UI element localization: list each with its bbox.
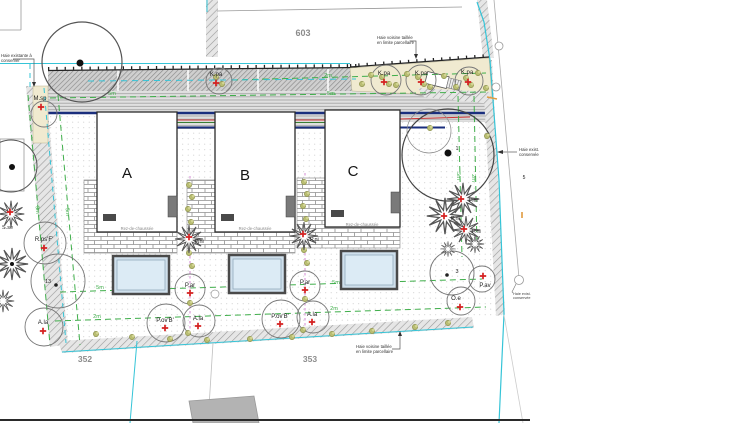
dim-2m-top: 2m bbox=[324, 73, 332, 79]
building-a-label: A bbox=[122, 165, 132, 182]
plant-label-oe: O.e bbox=[451, 296, 461, 302]
note-pole-line2: conservée bbox=[513, 296, 531, 300]
plant-label-rpsf: R.ps'F' bbox=[35, 237, 53, 243]
building-c-label: C bbox=[348, 163, 359, 180]
building-a-floor-label: Rez-de-chaussée bbox=[121, 226, 154, 231]
plant-label-kpa-2: K.pa bbox=[378, 71, 391, 77]
plant-label-msp: M.sp bbox=[33, 96, 47, 102]
plant-label-pni-3: P.ni bbox=[469, 198, 478, 204]
buildings: A B C Rez-de-chaussée Rez-de-chaussée Re… bbox=[97, 110, 400, 232]
utility-pole-1 bbox=[495, 42, 503, 50]
plant-label-ala-1: A.la bbox=[38, 320, 49, 326]
dim-2m-garden-left: 2m bbox=[93, 314, 101, 320]
note-top-line2: en limite parcellaire bbox=[377, 40, 415, 45]
plant-label-par-2: P.ar bbox=[300, 280, 310, 286]
marker-number-5: 5 bbox=[523, 175, 526, 181]
dim-2m-garden-mid: 2m bbox=[330, 306, 338, 312]
building-c bbox=[325, 110, 400, 227]
tree-number-3: 3 bbox=[455, 269, 458, 275]
parcel-label-353: 353 bbox=[303, 354, 317, 364]
utility-pole-3 bbox=[515, 276, 524, 285]
dim-2m-right: 2m bbox=[470, 174, 476, 182]
plant-label-povb-1: P.ov'B' bbox=[156, 318, 174, 324]
plant-label-par-1: P.ar bbox=[185, 283, 195, 289]
plant-label-ala-2: A.la bbox=[193, 316, 204, 322]
plant-label-sse: S.se bbox=[2, 225, 13, 231]
dim-3m-left: 3m bbox=[34, 206, 41, 215]
dim-5m-garden-left: 5m bbox=[96, 285, 104, 291]
parcel-label-603: 603 bbox=[295, 28, 310, 38]
plant-label-povb-2: P.ov'B' bbox=[271, 314, 289, 320]
site-plan-drawing: 2m 5m 5m 5m 5m 2m 2m 3m 5m 5m 2m bbox=[0, 0, 750, 423]
tree-number-1: 1 bbox=[456, 146, 459, 152]
plant-label-kpa-1: K.pa bbox=[210, 72, 223, 78]
plant-label-pni-1: P.ni bbox=[195, 239, 204, 245]
tree-number-13: 13 bbox=[45, 279, 51, 285]
dim-5m-garden-mid: 5m bbox=[332, 280, 340, 286]
building-b-label: B bbox=[240, 167, 250, 184]
plant-label-pni-4: P.ni bbox=[451, 216, 460, 222]
building-c-floor-label: Rez-de-chaussée bbox=[346, 222, 379, 227]
plant-label-ala-3: A.la bbox=[307, 312, 318, 318]
parcel-label-352: 352 bbox=[78, 354, 92, 364]
utility-pole-2 bbox=[492, 83, 500, 91]
plant-label-pni-2: P.ni bbox=[310, 237, 319, 243]
plant-label-pni-5: P.ni bbox=[472, 229, 481, 235]
building-b-floor-label: Rez-de-chaussée bbox=[239, 226, 272, 231]
note-bottom-line2: en limite parcellaire bbox=[356, 349, 394, 354]
pools bbox=[113, 251, 397, 294]
plant-label-kpa-3: K.pa bbox=[415, 71, 428, 77]
dim-5m-right: 5m bbox=[455, 172, 461, 180]
site-plan: 2m 5m 5m 5m 5m 2m 2m 3m 5m 5m 2m bbox=[0, 0, 750, 423]
neighbour-building bbox=[189, 396, 259, 423]
plant-label-pav: P.av bbox=[479, 283, 490, 289]
dim-5m-band-mid: 5m bbox=[327, 91, 335, 97]
note-right-line2: conservée bbox=[519, 152, 539, 157]
plant-label-kpa-4: K.pa bbox=[461, 70, 474, 76]
dim-5m-left: 5m bbox=[64, 208, 71, 217]
